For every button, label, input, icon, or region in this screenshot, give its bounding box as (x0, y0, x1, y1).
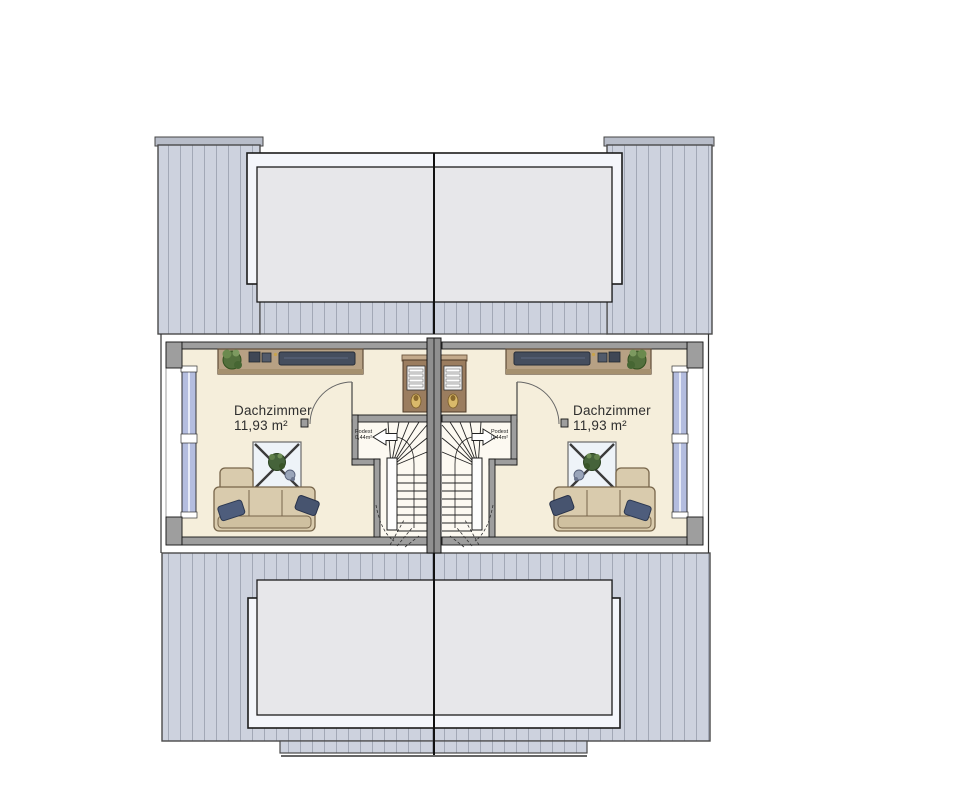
room-name: Dachzimmer (573, 403, 651, 418)
floor-plan-canvas: Dachzimmer 11,93 m² Dachzimmer 11,93 m² … (0, 0, 956, 800)
podest-label-left: Podest 0,44m² (355, 429, 372, 441)
plant (223, 350, 243, 370)
room-label-left: Dachzimmer 11,93 m² (234, 403, 312, 433)
window-mullion-bottom (181, 512, 197, 518)
floor-plan-drawing (0, 0, 956, 800)
stair-wall-top (352, 415, 427, 422)
roof-bottom (162, 553, 710, 756)
room-label-right: Dachzimmer 11,93 m² (573, 403, 651, 433)
room-name: Dachzimmer (234, 403, 312, 418)
wall-corner-bottom (166, 517, 182, 545)
coffee-table (253, 442, 301, 490)
sideboard-box (262, 353, 271, 362)
room-area: 11,93 m² (573, 418, 651, 433)
podest-area: 0,44m² (355, 435, 372, 441)
unit-right (439, 342, 703, 547)
room-area: 11,93 m² (234, 418, 312, 433)
stair-wall-shaft-left (374, 459, 380, 537)
stair-well (387, 458, 397, 530)
shelf-cabinet (402, 355, 430, 412)
wall-outer-face (166, 342, 182, 545)
sideboard (218, 349, 363, 374)
window-mullion-top (181, 366, 197, 372)
wall-top (182, 342, 427, 349)
window-mullion-mid (181, 434, 197, 443)
sideboard-knob (274, 353, 277, 356)
wall-corner-top (166, 342, 182, 368)
roof-top (155, 137, 714, 334)
window-wall (166, 342, 197, 545)
sideboard-box (249, 352, 260, 362)
unit-left (166, 342, 430, 547)
roof-wing-left (158, 145, 260, 334)
podest-area: 0,44m² (491, 435, 508, 441)
podest-label-right: Podest 0,44m² (491, 429, 508, 441)
